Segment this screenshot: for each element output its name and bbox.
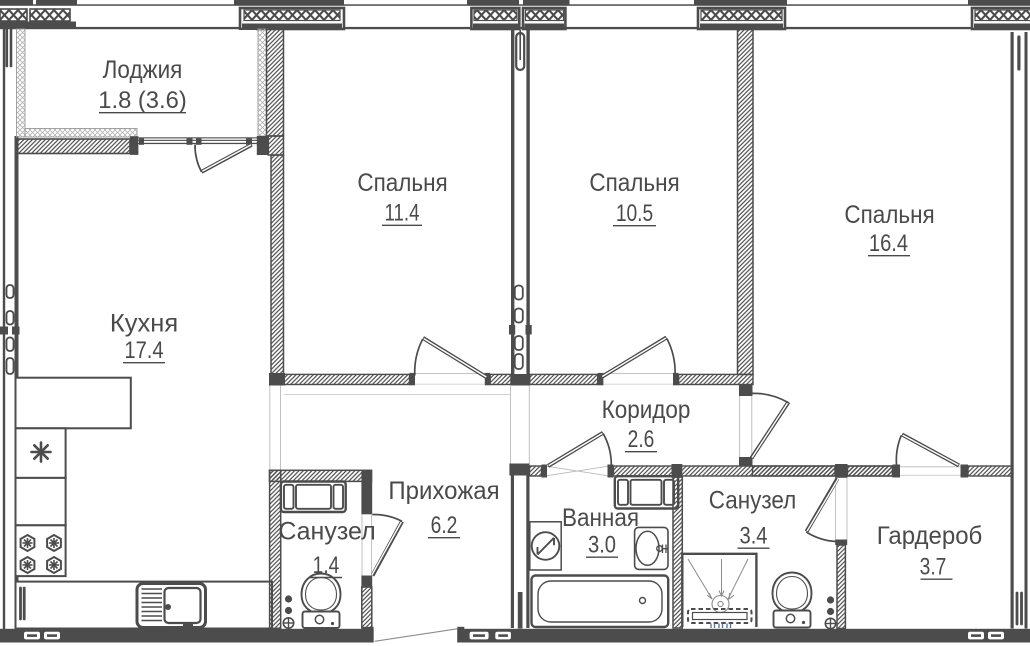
svg-text:3.0: 3.0 <box>588 531 616 558</box>
svg-text:1.4: 1.4 <box>313 551 340 579</box>
svg-text:Гардероб: Гардероб <box>877 523 983 551</box>
svg-text:Лоджия: Лоджия <box>103 56 183 84</box>
svg-text:3.4: 3.4 <box>739 522 767 549</box>
svg-text:1.8 (3.6): 1.8 (3.6) <box>98 87 186 114</box>
svg-text:Санузел: Санузел <box>278 518 375 546</box>
svg-text:6.2: 6.2 <box>431 511 458 539</box>
svg-text:17.4: 17.4 <box>124 336 163 363</box>
svg-text:Коридор: Коридор <box>602 396 691 424</box>
svg-text:Спальня: Спальня <box>357 169 447 197</box>
svg-text:16.4: 16.4 <box>869 229 908 256</box>
svg-text:Санузел: Санузел <box>709 486 797 514</box>
svg-text:10.5: 10.5 <box>616 199 653 227</box>
svg-text:11.4: 11.4 <box>384 199 419 226</box>
svg-text:Прихожая: Прихожая <box>388 478 499 506</box>
svg-text:Спальня: Спальня <box>844 201 934 229</box>
svg-text:3.7: 3.7 <box>920 552 947 580</box>
svg-text:Кухня: Кухня <box>110 310 178 338</box>
svg-text:2.6: 2.6 <box>628 425 655 453</box>
svg-text:Ванная: Ванная <box>562 504 639 532</box>
svg-text:Спальня: Спальня <box>589 169 679 197</box>
